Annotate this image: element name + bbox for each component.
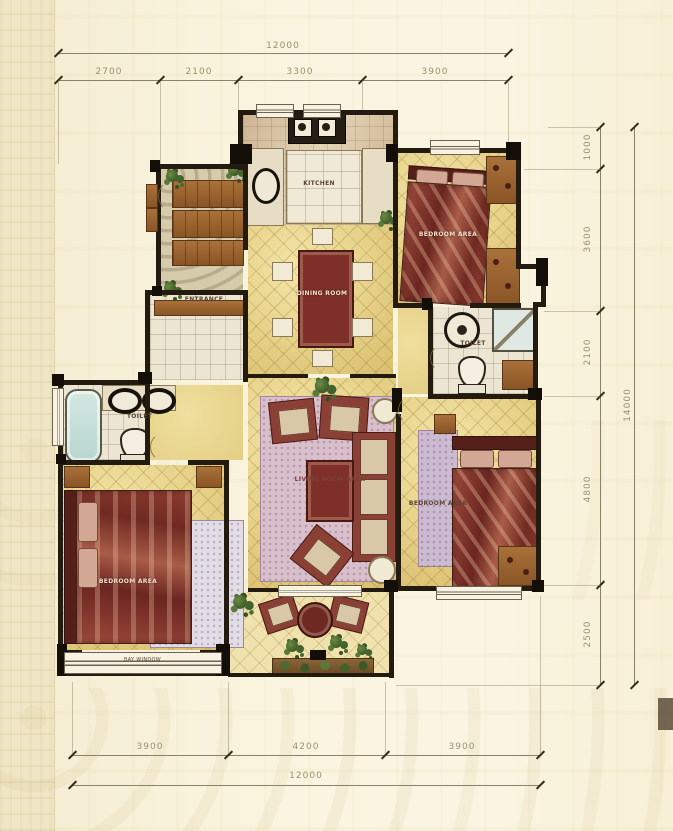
bath-right-label: TOILET [448, 341, 498, 348]
floor-plan-canvas: 12000 2700 2100 3300 3900 1000 3600 2100… [0, 0, 673, 831]
hallway-right-floor [398, 308, 428, 394]
pillar [230, 144, 252, 164]
cushion [302, 538, 342, 577]
dim-top-seg-3: 3300 [270, 67, 330, 77]
bay-window-label: BAY WINDOW [100, 658, 185, 664]
dim-extension [508, 82, 509, 144]
plant-icon [315, 379, 329, 393]
wall [156, 164, 243, 169]
nightstand [196, 466, 222, 488]
bay-window-bottom-right [436, 586, 522, 600]
wall [243, 290, 248, 382]
dim-extension [58, 82, 59, 164]
dim-extension [544, 396, 600, 397]
cushion [329, 405, 361, 433]
bath-cabinet [502, 360, 534, 390]
dim-extension [548, 127, 600, 128]
shower-stall [492, 308, 538, 352]
coffee-table [306, 460, 354, 522]
door-arc [398, 396, 426, 424]
toilet-tank [458, 384, 486, 394]
dim-extension [544, 585, 600, 586]
wall [58, 460, 148, 465]
wallpaper-ornament-band [0, 688, 673, 831]
entrance-label: ENTRANCE [172, 297, 236, 304]
dim-extension [396, 685, 600, 686]
dim-top-seg-4: 3900 [405, 67, 465, 77]
wall [58, 460, 63, 655]
pillar [386, 144, 398, 162]
dim-extension [524, 169, 600, 170]
plant-icon [330, 636, 342, 648]
door-arc [150, 432, 182, 462]
dim-right-seg-3: 2100 [583, 322, 593, 382]
dim-right-seg-4: 4800 [583, 459, 593, 519]
wall [536, 392, 541, 590]
pillar [310, 650, 326, 660]
wall [516, 148, 521, 268]
burner-icon [318, 119, 336, 137]
dim-extension [385, 682, 386, 753]
balcony-sliding-door [278, 585, 362, 597]
entry-door-arc [158, 180, 190, 212]
plant-icon [233, 595, 247, 609]
nightstand [64, 466, 90, 488]
window [52, 388, 64, 446]
dim-bottom-seg-3: 3900 [432, 742, 492, 752]
edge-artifact [658, 698, 673, 730]
wall [248, 374, 308, 378]
dining-label: DINING ROOM [288, 291, 356, 298]
entry-cabinet [172, 240, 244, 266]
bed-headboard [452, 436, 540, 450]
bath-left-label: TOILET [112, 414, 167, 421]
wall [350, 374, 396, 378]
knob-icon [493, 259, 499, 265]
knob-icon [493, 165, 499, 171]
pillar [506, 142, 521, 160]
pillar [532, 580, 544, 592]
pillow [78, 502, 98, 542]
bathtub [65, 389, 102, 463]
bed [64, 490, 190, 642]
pillow [460, 450, 494, 468]
dim-right-seg-5: 2500 [583, 604, 593, 664]
dresser [486, 156, 520, 204]
dim-top-total: 12000 [253, 41, 313, 51]
dim-extension [362, 82, 363, 110]
sink-icon [108, 388, 142, 414]
cushion [267, 602, 295, 627]
knob-icon [505, 283, 511, 289]
pillar [56, 454, 66, 464]
pillar [528, 388, 542, 400]
wall [228, 673, 391, 677]
door-arc [430, 275, 464, 307]
knob-icon [523, 569, 529, 575]
dim-top-seg-2: 2100 [169, 67, 229, 77]
dining-chair [272, 318, 293, 337]
dim-right-total: 14000 [623, 375, 633, 435]
wall [393, 148, 398, 308]
wall [396, 586, 436, 591]
dim-bottom-seg-2: 4200 [276, 742, 336, 752]
window [430, 140, 480, 155]
cushion [360, 439, 388, 475]
pillar [52, 374, 64, 386]
wall [389, 588, 394, 678]
dining-chair [352, 262, 373, 281]
armchair [268, 398, 318, 445]
pillow [498, 450, 532, 468]
plant-icon [286, 640, 298, 652]
wall [533, 302, 538, 397]
wall [428, 394, 538, 399]
dining-chair [352, 318, 373, 337]
wall [243, 164, 248, 250]
living-label: LIVING ROOM AREA [286, 477, 374, 484]
bedroom-bottom-left-label: BEDROOM AREA [88, 579, 168, 586]
window [303, 104, 341, 118]
dim-line-top-total [58, 53, 508, 54]
wall [58, 380, 150, 385]
dim-line-bottom-total [72, 785, 540, 786]
wall [145, 380, 150, 465]
balcony-table [297, 602, 333, 638]
wall [248, 588, 278, 592]
dim-line-right-total [634, 127, 635, 685]
pillar [150, 160, 160, 172]
dim-extension [544, 311, 600, 312]
sofa [352, 432, 396, 562]
dining-chair [312, 228, 333, 245]
dim-line-top-segments [58, 80, 508, 81]
cushion [278, 407, 311, 436]
bedroom-top-right-label: BEDROOM AREA [408, 232, 488, 239]
dresser [486, 248, 520, 306]
entry-cabinet [172, 210, 244, 238]
dim-extension [72, 682, 73, 753]
dining-chair [312, 350, 333, 367]
dim-extension [238, 82, 239, 110]
knob-icon [505, 183, 511, 189]
cushion [360, 519, 388, 555]
door-arc [430, 344, 458, 372]
entry-door-leaf [146, 184, 158, 208]
nightstand [434, 414, 456, 434]
pillar [422, 298, 432, 310]
pillar [384, 580, 398, 592]
dim-right-seg-1: 1000 [583, 117, 593, 177]
dim-line-right-segments [600, 127, 601, 685]
kitchen-sink [252, 168, 280, 204]
dining-table [298, 250, 354, 348]
pillar [152, 286, 162, 296]
burner-icon [294, 119, 312, 137]
window [256, 104, 294, 118]
dining-chair [272, 262, 293, 281]
dim-bottom-total: 12000 [276, 771, 336, 781]
dim-right-seg-2: 3600 [583, 209, 593, 269]
dim-bottom-seg-1: 3900 [120, 742, 180, 752]
pillar [138, 372, 152, 384]
wall [188, 460, 229, 465]
wall [145, 290, 150, 385]
dim-extension [160, 82, 161, 164]
dim-line-bottom-segments [72, 755, 540, 756]
dim-extension [540, 596, 541, 753]
entry-door-leaf [146, 208, 158, 232]
dim-top-seg-1: 2700 [79, 67, 139, 77]
wall [470, 303, 521, 308]
cushion [360, 479, 388, 515]
plant-icon [380, 212, 392, 224]
plant-icon [357, 645, 367, 655]
cushion [335, 603, 362, 627]
pillar [536, 258, 548, 286]
knob-icon [507, 557, 513, 563]
dim-extension [228, 682, 229, 753]
bedroom-bottom-right-label: BEDROOM AREA [398, 501, 478, 508]
kitchen-label: KITCHEN [289, 181, 349, 188]
